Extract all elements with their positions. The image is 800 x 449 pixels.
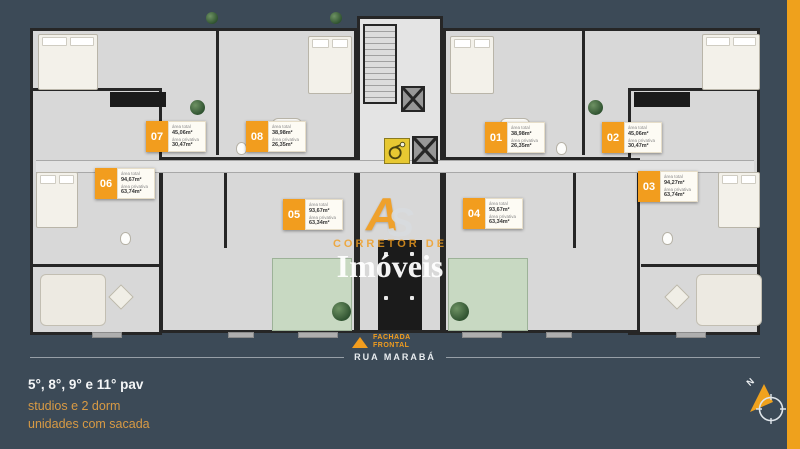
unit-label-02: 02 área total 45,06m² área privativa 30,… — [602, 122, 662, 153]
unit-number: 04 — [463, 198, 485, 229]
balcony-line: unidades com sacada — [28, 415, 150, 433]
unit-label-01: 01 área total 38,98m² área privativa 26,… — [485, 122, 545, 153]
facade-line1: FACHADA — [373, 334, 411, 342]
street-rule-right — [446, 357, 760, 358]
area-total-value: 38,98m² — [272, 130, 302, 137]
wall-unit04-bath — [573, 160, 576, 248]
unit-areas: área total 94,67m² área privativa 63,74m… — [117, 168, 155, 199]
stairs-icon — [363, 24, 397, 104]
unit-number: 01 — [485, 122, 507, 153]
unit-areas: área total 93,67m² área privativa 63,34m… — [305, 199, 343, 230]
area-privativa-value: 30,47m² — [628, 143, 658, 150]
wall-tower-left-div — [32, 264, 159, 267]
area-total-value: 45,06m² — [172, 130, 202, 137]
unit-label-05: 05 área total 93,67m² área privativa 63,… — [283, 199, 343, 230]
wall-unit05-bath — [224, 160, 227, 248]
plant-icon — [330, 12, 342, 24]
area-privativa-value: 26,35m² — [511, 143, 541, 150]
bed — [38, 34, 98, 90]
street-name: RUA MARABÁ — [354, 352, 436, 362]
accent-stripe — [787, 0, 800, 449]
toilet — [120, 232, 131, 245]
unit-label-08: 08 área total 38,98m² área privativa 26,… — [246, 121, 306, 152]
unit-types-line: studios e 2 dorm — [28, 397, 150, 415]
unit-areas: área total 45,06m² área privativa 30,47m… — [624, 122, 662, 153]
unit-areas: área total 94,27m² área privativa 63,74m… — [660, 171, 698, 202]
area-total-value: 93,67m² — [309, 208, 339, 215]
facade-arrow-icon — [352, 337, 368, 348]
wall-tower-right-div — [641, 264, 758, 267]
unit-number: 02 — [602, 122, 624, 153]
stove-burner — [410, 252, 414, 256]
bed — [308, 36, 352, 94]
ledge — [676, 332, 706, 338]
elevator-icon — [401, 86, 425, 112]
kitchen-counter — [634, 92, 690, 107]
toilet — [556, 142, 567, 155]
stove-burner — [384, 252, 388, 256]
area-privativa-value: 63,34m² — [489, 219, 519, 226]
area-total-value: 94,67m² — [121, 177, 151, 184]
plant-icon — [588, 100, 603, 115]
facade-line2: FRONTAL — [373, 342, 411, 350]
sofa — [40, 274, 106, 326]
unit-number: 07 — [146, 121, 168, 152]
elevator-icon — [412, 136, 438, 164]
bed — [718, 172, 760, 228]
unit-areas: área total 38,98m² área privativa 26,35m… — [268, 121, 306, 152]
unit-label-06: 06 área total 94,67m² área privativa 63,… — [95, 168, 155, 199]
area-total-value: 45,06m² — [628, 131, 658, 138]
bed — [702, 34, 760, 90]
unit-number: 06 — [95, 168, 117, 199]
bed — [450, 36, 494, 94]
area-total-value: 38,98m² — [511, 131, 541, 138]
area-total-value: 93,67m² — [489, 207, 519, 214]
compass-rose: N — [744, 376, 792, 428]
street-row: RUA MARABÁ — [30, 352, 760, 362]
ledge — [92, 332, 122, 338]
ledge — [228, 332, 254, 338]
stove-burner — [384, 296, 388, 300]
ledge — [462, 332, 502, 338]
stove-burner — [410, 296, 414, 300]
area-privativa-value: 63,34m² — [309, 220, 339, 227]
area-privativa-value: 26,35m² — [272, 142, 302, 149]
facade-label: FACHADA FRONTAL — [373, 334, 411, 350]
unit-number: 05 — [283, 199, 305, 230]
ledge — [546, 332, 572, 338]
plant-icon — [190, 100, 205, 115]
unit-areas: área total 38,98m² área privativa 26,35m… — [507, 122, 545, 153]
ledge — [298, 332, 338, 338]
unit-label-04: 04 área total 93,67m² área privativa 63,… — [463, 198, 523, 229]
plant-icon — [332, 302, 351, 321]
plant-icon — [206, 12, 218, 24]
area-privativa-value: 63,74m² — [121, 189, 151, 196]
floor-plan-poster: 07 área total 45,06m² área privativa 30,… — [0, 0, 800, 449]
unit-areas: área total 93,67m² área privativa 63,34m… — [485, 198, 523, 229]
wall-07-08 — [216, 31, 219, 155]
plant-icon — [450, 302, 469, 321]
sofa — [696, 274, 762, 326]
unit-label-03: 03 área total 94,27m² área privativa 63,… — [638, 171, 698, 202]
unit-number: 08 — [246, 121, 268, 152]
floors-line: 5°, 8°, 9° e 11° pav — [28, 377, 150, 392]
footer-caption: 5°, 8°, 9° e 11° pav studios e 2 dorm un… — [28, 377, 150, 433]
area-privativa-value: 30,47m² — [172, 142, 202, 149]
kitchen-counter — [110, 92, 166, 107]
area-total-value: 94,27m² — [664, 180, 694, 187]
bed — [36, 172, 78, 228]
cart-icon — [384, 138, 410, 164]
toilet — [662, 232, 673, 245]
wall-01-02 — [582, 31, 585, 155]
unit-number: 03 — [638, 171, 660, 202]
unit-label-07: 07 área total 45,06m² área privativa 30,… — [146, 121, 206, 152]
unit-areas: área total 45,06m² área privativa 30,47m… — [168, 121, 206, 152]
street-rule-left — [30, 357, 344, 358]
facade-badge: FACHADA FRONTAL — [352, 334, 411, 350]
area-privativa-value: 63,74m² — [664, 192, 694, 199]
